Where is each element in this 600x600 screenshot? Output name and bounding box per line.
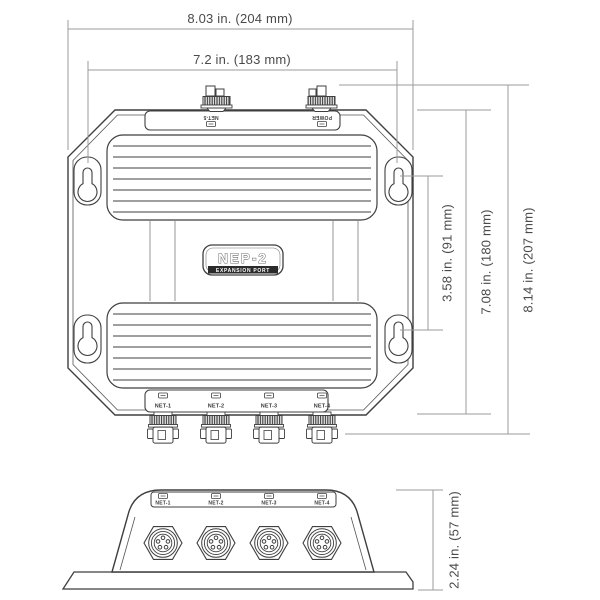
port-icon: [207, 122, 216, 127]
dim-body-height: 7.08 in. (180 mm): [479, 209, 494, 314]
port-label-net3: NET-3: [261, 404, 278, 410]
port-label-net4: NET-4: [314, 404, 331, 410]
heatsink-upper: [107, 135, 377, 220]
power-connector: [306, 86, 337, 112]
top-port-label-net5: NET-5: [203, 114, 218, 120]
model-subtitle: EXPANSION PORT: [216, 268, 270, 274]
port-icon: [159, 494, 168, 499]
front-view: NEP-2 EXPANSION PORT NET-5 POWER: [68, 86, 413, 443]
technical-drawing-page: NEP-2 EXPANSION PORT NET-5 POWER: [0, 0, 600, 600]
heatsink-lower: [107, 303, 377, 388]
port-icon: [265, 393, 274, 398]
network-connector: [307, 412, 338, 443]
port-label-net1: NET-1: [155, 404, 172, 410]
side-port-label-net2: NET-2: [208, 501, 223, 507]
side-view: NET-1 NET-2 NET-3 NET-4: [63, 490, 413, 589]
model-name: NEP-2: [218, 251, 268, 266]
product-label: NEP-2 EXPANSION PORT: [203, 245, 283, 275]
network-connector: [201, 412, 232, 443]
side-port-label-net1: NET-1: [155, 501, 170, 507]
port-icon: [318, 393, 327, 398]
port-icon: [212, 393, 221, 398]
network-connector: [148, 412, 179, 443]
port-icon: [318, 494, 327, 499]
dim-mounting-width: 7.2 in. (183 mm): [193, 52, 291, 67]
side-port-strip: [151, 492, 336, 507]
port-icon: [212, 494, 221, 499]
port-icon: [265, 494, 274, 499]
top-port-label-power: POWER: [312, 114, 332, 120]
port-label-net2: NET-2: [208, 404, 225, 410]
dim-overall-width: 8.03 in. (204 mm): [187, 11, 292, 26]
dim-hole-spacing: 3.58 in. (91 mm): [440, 204, 455, 302]
base-plate: [63, 572, 413, 589]
bottom-port-strip: [145, 390, 328, 412]
side-port-label-net4: NET-4: [314, 501, 329, 507]
dimension-drawing: NEP-2 EXPANSION PORT NET-5 POWER: [0, 0, 600, 600]
net5-connector: [201, 86, 232, 112]
dim-overall-height: 8.14 in. (207 mm): [521, 207, 536, 312]
side-port-label-net3: NET-3: [261, 501, 276, 507]
port-icon: [318, 122, 327, 127]
top-port-strip: [145, 111, 340, 130]
dim-depth: 2.24 in. (57 mm): [447, 491, 462, 589]
network-connector: [254, 412, 285, 443]
port-icon: [159, 393, 168, 398]
